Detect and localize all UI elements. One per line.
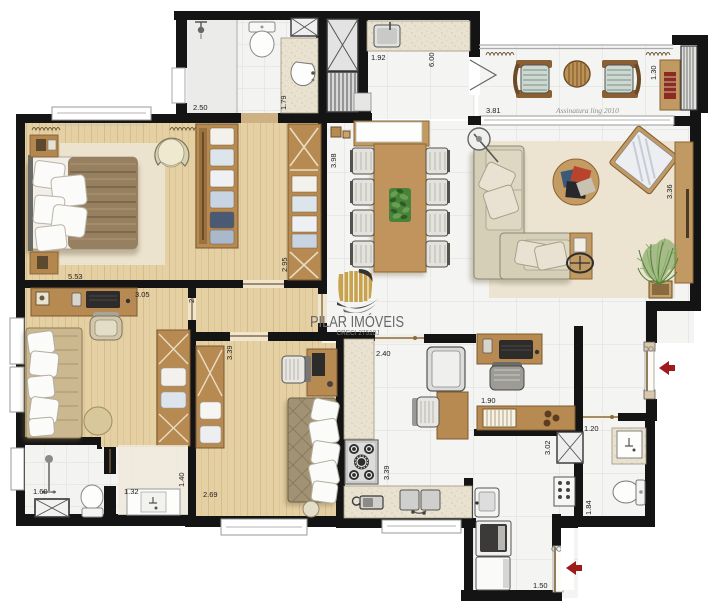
svg-text:3.02: 3.02 xyxy=(543,440,552,455)
svg-text:6.00: 6.00 xyxy=(427,52,436,67)
svg-text:3.05: 3.05 xyxy=(135,290,150,299)
svg-text:3.81: 3.81 xyxy=(486,106,501,115)
svg-text:2.50: 2.50 xyxy=(193,103,208,112)
svg-text:Assinatura ling 2010: Assinatura ling 2010 xyxy=(555,106,619,115)
svg-text:1.92: 1.92 xyxy=(371,53,386,62)
svg-text:3.98: 3.98 xyxy=(329,153,338,168)
svg-text:1.30: 1.30 xyxy=(649,65,658,80)
svg-text:3.39: 3.39 xyxy=(382,465,391,480)
svg-text:2.95: 2.95 xyxy=(280,257,289,272)
svg-text:PILAR IMÓVEIS: PILAR IMÓVEIS xyxy=(310,314,404,331)
svg-text:CRECI 27510J: CRECI 27510J xyxy=(337,330,380,337)
svg-text:5.53: 5.53 xyxy=(68,272,83,281)
svg-text:1.50: 1.50 xyxy=(533,581,548,590)
svg-text:1.32: 1.32 xyxy=(124,487,139,496)
svg-text:1.40: 1.40 xyxy=(177,472,186,487)
svg-text:2.69: 2.69 xyxy=(203,490,218,499)
svg-text:1.20: 1.20 xyxy=(584,424,599,433)
svg-text:3.39: 3.39 xyxy=(225,345,234,360)
svg-text:1.60: 1.60 xyxy=(33,487,48,496)
svg-text:1.90: 1.90 xyxy=(481,396,496,405)
svg-text:1.84: 1.84 xyxy=(584,500,593,515)
svg-text:2.89: 2.89 xyxy=(187,288,196,303)
svg-text:1.79: 1.79 xyxy=(279,95,288,110)
svg-text:3.36: 3.36 xyxy=(665,184,674,199)
svg-text:2.40: 2.40 xyxy=(376,349,391,358)
